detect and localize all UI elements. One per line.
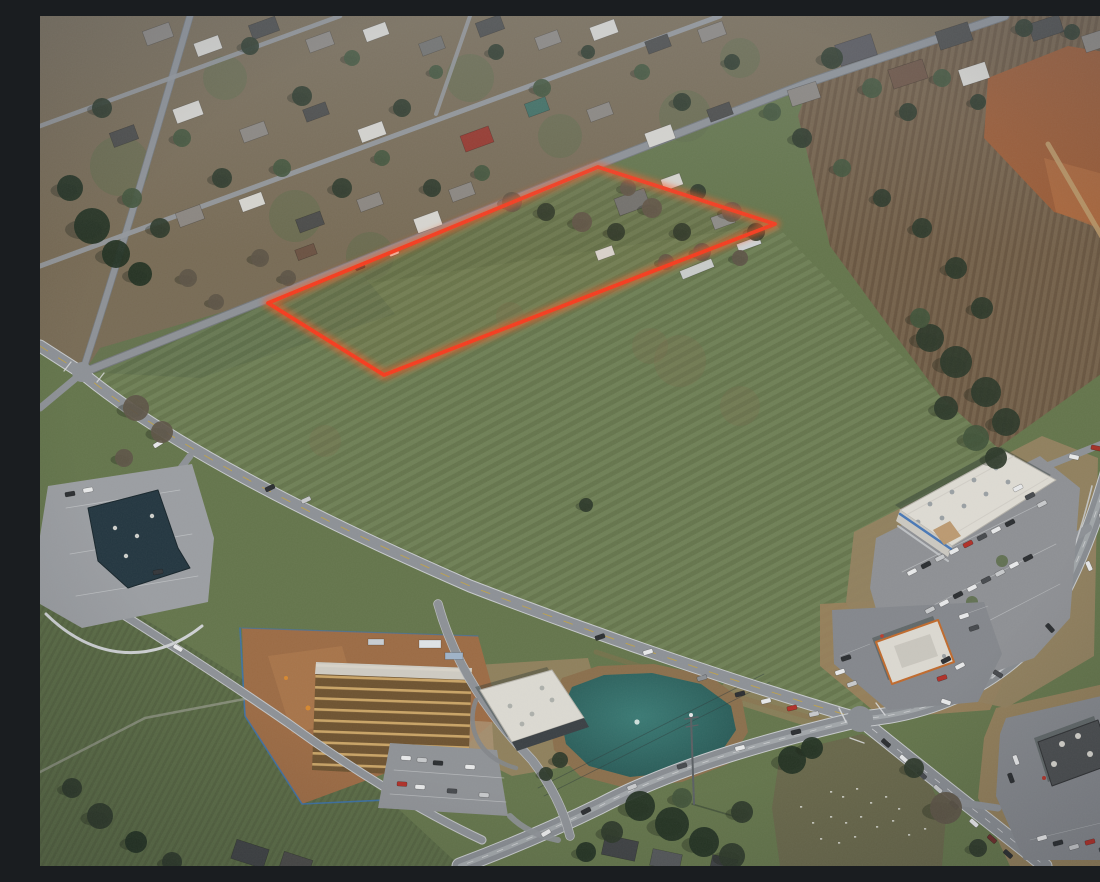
aerial-photo	[40, 16, 1100, 866]
aerial-photo-svg	[40, 16, 1100, 866]
photo-grain	[40, 16, 1100, 866]
